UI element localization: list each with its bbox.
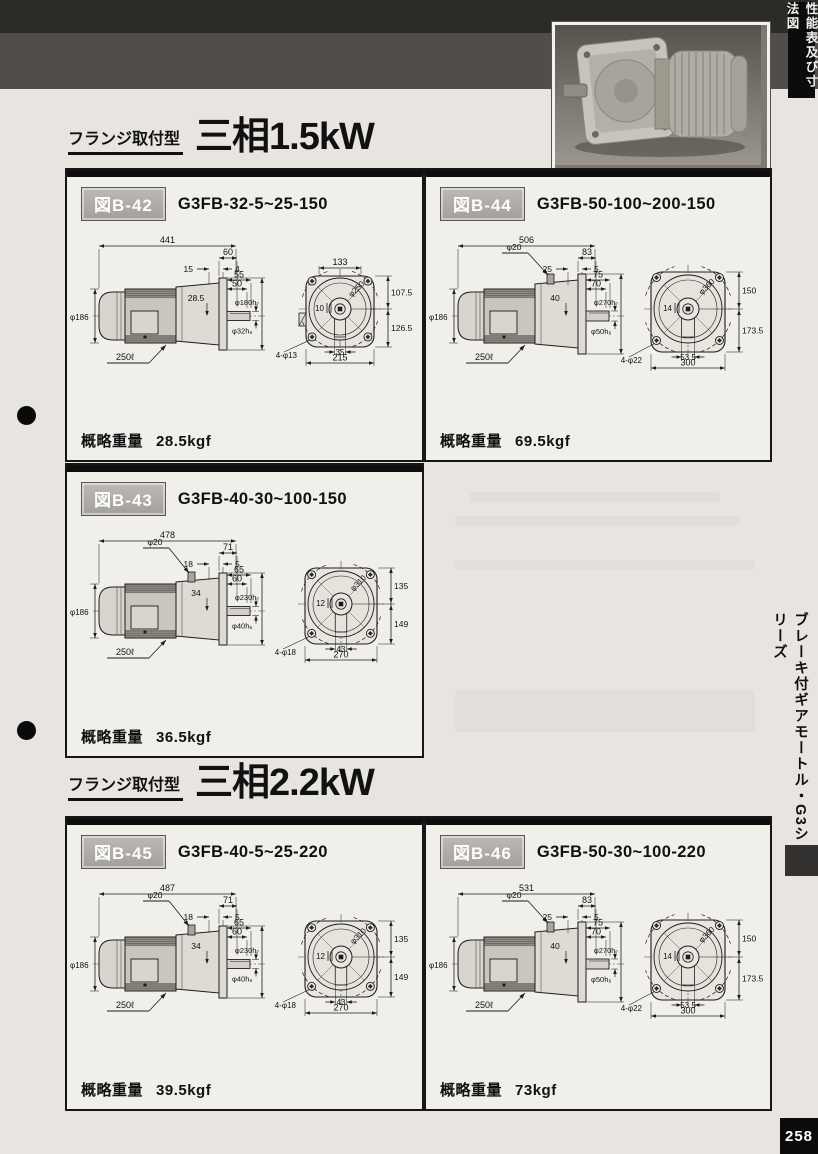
dim-label: 250ℓ xyxy=(116,352,135,362)
page-number-box: 258 xyxy=(780,1118,818,1154)
dim-label: 25 xyxy=(543,912,553,922)
show-through-text xyxy=(470,492,720,503)
box-top-bar xyxy=(67,465,422,472)
dim-label: φ32h₆ xyxy=(232,327,252,336)
dim-label: 14 xyxy=(663,952,672,961)
section-header-1: フランジ取付型 三相1.5kW xyxy=(68,120,374,155)
box-top-bar xyxy=(67,170,422,177)
show-through-text xyxy=(455,690,755,732)
dim-label: 250ℓ xyxy=(475,1000,494,1010)
weight-label: 概略重量 xyxy=(440,433,502,450)
dim-label: 4-φ18 xyxy=(275,648,297,657)
dim-label: 487 xyxy=(160,883,175,893)
dim-label: 149 xyxy=(394,972,408,982)
dim-label: 300 xyxy=(680,1006,695,1016)
punch-hole xyxy=(17,721,36,740)
dim-label: 250ℓ xyxy=(116,647,135,657)
dim-label: 14 xyxy=(663,304,672,313)
punch-hole xyxy=(17,406,36,425)
dim-label: 300 xyxy=(680,358,695,368)
dim-label: 12 xyxy=(316,952,325,961)
dimension-drawing-b42: 441601545550φ180h₇28.5φ32h₆φ186250ℓφ2501… xyxy=(69,232,418,402)
dim-label: 270 xyxy=(333,1003,348,1013)
series-sidebar-label: ブレーキ付ギアモートル・G3シリーズ xyxy=(769,612,811,857)
dim-label: φ40h₆ xyxy=(232,622,252,631)
dim-label: 250ℓ xyxy=(475,352,494,362)
power-rating-label: 三相2.2kW xyxy=(195,766,374,801)
dimension-drawing-b44: φ20506832557570φ270h₇40φ50h₆φ186250ℓφ360… xyxy=(428,232,772,402)
dim-label: 126.5 xyxy=(391,323,413,333)
dim-label: 70 xyxy=(591,279,601,289)
dim-label: 18 xyxy=(184,912,194,922)
dim-label: 71 xyxy=(223,542,233,552)
dim-label: 71 xyxy=(223,895,233,905)
dim-label: 60 xyxy=(232,927,242,937)
box-top-bar xyxy=(426,818,770,825)
dim-label: 28.5 xyxy=(188,293,205,303)
dim-label: 173.5 xyxy=(742,326,764,336)
model-number: G3FB-50-100~200-150 xyxy=(537,195,716,214)
figure-box-b42: 図B-42 G3FB-32-5~25-150 441601545550φ180h… xyxy=(65,168,424,462)
sidebar-index-tab xyxy=(785,845,818,876)
dim-label: 135 xyxy=(394,581,408,591)
dim-label: 60 xyxy=(223,247,233,257)
dim-label: 441 xyxy=(160,235,175,245)
product-photo xyxy=(552,22,770,174)
mount-type-label: フランジ取付型 xyxy=(68,125,183,155)
figure-box-b46: 図B-46 G3FB-50-30~100-220 φ20531832557570… xyxy=(424,816,772,1111)
dim-label: 60 xyxy=(232,574,242,584)
figure-badge: 図B-42 xyxy=(81,187,166,221)
dim-label: φ186 xyxy=(70,961,89,970)
dim-label: 12 xyxy=(316,599,325,608)
dim-label: 4-φ22 xyxy=(621,356,643,365)
weight-value: 28.5kgf xyxy=(156,433,211,450)
weight-line: 概略重量39.5kgf xyxy=(81,1079,211,1100)
power-rating-label: 三相1.5kW xyxy=(195,120,374,155)
mount-type-label: フランジ取付型 xyxy=(68,771,183,801)
figure-box-b43: 図B-43 G3FB-40-30~100-150 φ20478711856560… xyxy=(65,463,424,758)
dimension-drawing-b43: φ20478711856560φ230h₇34φ40h₆φ186250ℓφ310… xyxy=(69,527,418,697)
weight-label: 概略重量 xyxy=(81,729,143,746)
dim-label: φ40h₆ xyxy=(232,975,252,984)
dim-label: 40 xyxy=(550,293,560,303)
dim-label: φ186 xyxy=(70,313,89,322)
box-top-bar xyxy=(67,818,422,825)
dim-label: φ186 xyxy=(429,961,448,970)
dim-label: φ50h₆ xyxy=(591,975,611,984)
dim-label: 149 xyxy=(394,619,408,629)
dim-label: 478 xyxy=(160,530,175,540)
dim-label: 150 xyxy=(742,286,756,296)
weight-value: 39.5kgf xyxy=(156,1082,211,1099)
figure-badge: 図B-46 xyxy=(440,835,525,869)
dim-label: 10 xyxy=(315,304,324,313)
weight-label: 概略重量 xyxy=(81,1082,143,1099)
figure-box-b45: 図B-45 G3FB-40-5~25-220 φ20487711856560φ2… xyxy=(65,816,424,1111)
dim-label: 133 xyxy=(332,257,347,267)
show-through-text xyxy=(455,560,755,569)
dim-label: 40 xyxy=(550,941,560,951)
dim-label: 150 xyxy=(742,934,756,944)
weight-value: 73kgf xyxy=(515,1082,557,1099)
dim-label: 34 xyxy=(191,588,201,598)
weight-label: 概略重量 xyxy=(440,1082,502,1099)
page-number: 258 xyxy=(785,1128,813,1145)
dim-label: 34 xyxy=(191,941,201,951)
dim-label: 506 xyxy=(519,235,534,245)
dim-label: 531 xyxy=(519,883,534,893)
weight-value: 69.5kgf xyxy=(515,433,570,450)
model-number: G3FB-40-30~100-150 xyxy=(178,490,347,509)
corner-tab: 性能表及び寸法図 xyxy=(788,2,815,98)
corner-tab-label: 性能表及び寸法図 xyxy=(783,2,818,98)
motor-photo-art xyxy=(555,25,761,165)
dim-label: 83 xyxy=(582,895,592,905)
dim-label: 4-φ22 xyxy=(621,1004,643,1013)
weight-value: 36.5kgf xyxy=(156,729,211,746)
model-number: G3FB-50-30~100-220 xyxy=(537,843,706,862)
dimension-drawing-b45: φ20487711856560φ230h₇34φ40h₆φ186250ℓφ310… xyxy=(69,880,418,1050)
figure-badge: 図B-44 xyxy=(440,187,525,221)
weight-line: 概略重量36.5kgf xyxy=(81,726,211,747)
dim-label: 83 xyxy=(582,247,592,257)
dim-label: 107.5 xyxy=(391,288,413,298)
figure-badge: 図B-43 xyxy=(81,482,166,516)
model-number: G3FB-32-5~25-150 xyxy=(178,195,328,214)
show-through-text xyxy=(455,516,740,526)
dimension-drawing-b46: φ20531832557570φ270h₇40φ50h₆φ186250ℓφ360… xyxy=(428,880,772,1050)
dim-label: φ50h₆ xyxy=(591,327,611,336)
dim-label: 135 xyxy=(394,934,408,944)
dim-label: 25 xyxy=(543,264,553,274)
figure-box-b44: 図B-44 G3FB-50-100~200-150 φ2050683255757… xyxy=(424,168,772,462)
dim-label: 250ℓ xyxy=(116,1000,135,1010)
model-number: G3FB-40-5~25-220 xyxy=(178,843,328,862)
dim-label: 15 xyxy=(184,264,194,274)
dim-label: 270 xyxy=(333,650,348,660)
weight-line: 概略重量28.5kgf xyxy=(81,430,211,451)
dim-label: 18 xyxy=(184,559,194,569)
box-top-bar xyxy=(426,170,770,177)
weight-line: 概略重量69.5kgf xyxy=(440,430,570,451)
weight-label: 概略重量 xyxy=(81,433,143,450)
section-header-2: フランジ取付型 三相2.2kW xyxy=(68,766,374,801)
dim-label: φ186 xyxy=(429,313,448,322)
dim-label: 4-φ18 xyxy=(275,1001,297,1010)
figure-badge: 図B-45 xyxy=(81,835,166,869)
dim-label: φ186 xyxy=(70,608,89,617)
dim-label: 215 xyxy=(332,353,347,363)
dim-label: 4-φ13 xyxy=(276,351,298,360)
dim-label: 70 xyxy=(591,927,601,937)
dim-label: 173.5 xyxy=(742,974,764,984)
dim-label: 50 xyxy=(232,279,242,289)
weight-line: 概略重量73kgf xyxy=(440,1079,557,1100)
